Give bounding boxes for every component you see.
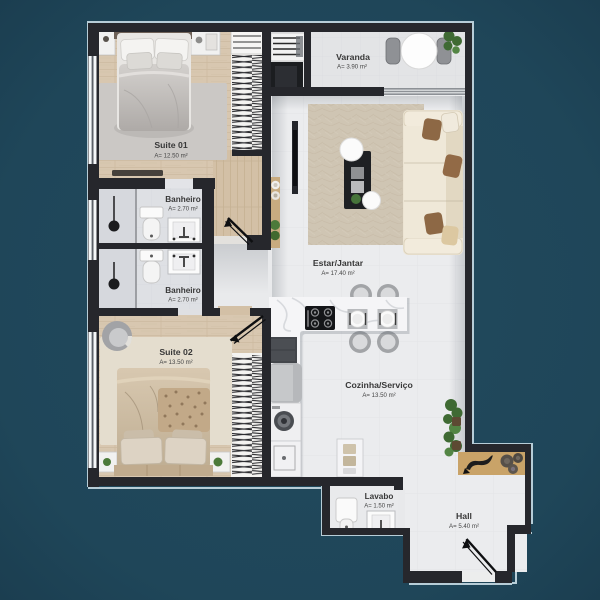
svg-text:A= 12.50 m²: A= 12.50 m² xyxy=(154,153,187,160)
svg-text:Cozinha/Serviço: Cozinha/Serviço xyxy=(345,380,413,390)
svg-text:A= 3.90 m²: A= 3.90 m² xyxy=(337,64,367,71)
svg-text:A= 2.70 m²: A= 2.70 m² xyxy=(168,298,198,304)
svg-text:A= 13.50 m²: A= 13.50 m² xyxy=(159,359,192,366)
svg-text:Banheiro: Banheiro xyxy=(165,195,201,204)
svg-text:Hall: Hall xyxy=(456,511,472,521)
svg-text:A= 5.40 m²: A= 5.40 m² xyxy=(449,523,479,530)
svg-text:Estar/Jantar: Estar/Jantar xyxy=(313,258,364,268)
svg-text:A= 17.40 m²: A= 17.40 m² xyxy=(321,270,354,277)
svg-text:A= 2.70 m²: A= 2.70 m² xyxy=(168,207,198,213)
svg-text:Varanda: Varanda xyxy=(336,52,370,62)
svg-text:Lavabo: Lavabo xyxy=(365,492,394,501)
svg-text:A= 1.50 m²: A= 1.50 m² xyxy=(364,504,394,510)
svg-text:Banheiro: Banheiro xyxy=(165,286,201,295)
svg-text:A= 13.50 m²: A= 13.50 m² xyxy=(362,392,395,399)
svg-text:Suite 01: Suite 01 xyxy=(154,140,187,150)
svg-text:Suite 02: Suite 02 xyxy=(159,347,192,357)
